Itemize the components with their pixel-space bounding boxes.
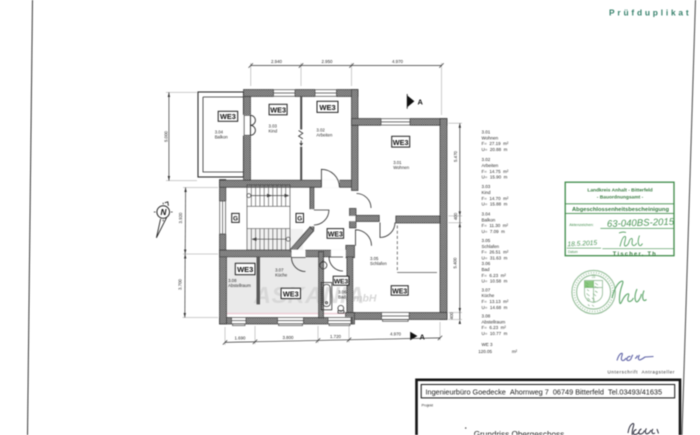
svg-text:5.470: 5.470 [453, 150, 458, 162]
svg-text:Kind: Kind [482, 190, 492, 195]
svg-text:Abgeschlossenheitsbescheinigun: Abgeschlossenheitsbescheinigung [572, 207, 669, 213]
svg-text:WE3: WE3 [393, 138, 409, 147]
svg-text:Tischer, Th: Tischer, Th [613, 251, 657, 257]
svg-text:Bad: Bad [482, 267, 491, 272]
svg-text:400: 400 [453, 212, 458, 220]
svg-text:3.05: 3.05 [482, 238, 491, 243]
svg-text:400: 400 [449, 312, 454, 320]
svg-text:Küche: Küche [482, 293, 495, 298]
svg-text:Abstellraum: Abstellraum [228, 283, 251, 288]
svg-text:3.04: 3.04 [482, 212, 491, 217]
svg-text:WE3: WE3 [220, 112, 236, 121]
svg-text:m²: m² [512, 349, 518, 354]
svg-text:F= 14.75 m²: F= 14.75 m² [482, 169, 509, 174]
svg-text:Abstellraum: Abstellraum [482, 319, 506, 324]
svg-text:WE3: WE3 [328, 231, 343, 238]
svg-text:WE3: WE3 [319, 103, 335, 112]
svg-text:Küche: Küche [275, 273, 288, 278]
svg-text:U= 31.63 m: U= 31.63 m [482, 255, 508, 260]
svg-text:4.970: 4.970 [390, 331, 402, 336]
svg-text:3.03: 3.03 [482, 184, 491, 189]
svg-text:Landkreis Anhalt - Bitterfeld: Landkreis Anhalt - Bitterfeld [587, 187, 652, 193]
svg-text:Prüfduplikat: Prüfduplikat [609, 7, 691, 17]
svg-text:3.07: 3.07 [482, 287, 491, 292]
svg-text:F= 27.19 m²: F= 27.19 m² [482, 141, 509, 146]
svg-text:F= 13.13 m²: F= 13.13 m² [482, 299, 509, 304]
svg-text:WE3: WE3 [237, 265, 253, 274]
svg-text:3.700: 3.700 [178, 278, 183, 290]
svg-text:3.920: 3.920 [178, 212, 183, 224]
svg-text:U= 15.88 m: U= 15.88 m [482, 202, 508, 207]
svg-text:A: A [420, 333, 426, 342]
svg-text:A: A [418, 98, 424, 107]
svg-text:Arbeiten: Arbeiten [482, 163, 499, 168]
svg-text:1.690: 1.690 [235, 336, 247, 341]
svg-text:Arbeiten: Arbeiten [316, 133, 333, 138]
svg-text:Ingenieurbüro Goedecke Ahornw: Ingenieurbüro Goedecke Ahornweg 7 06749 … [426, 387, 663, 396]
svg-text:WE3: WE3 [283, 289, 299, 298]
svg-text:Balkon: Balkon [482, 217, 496, 222]
svg-text:3.08: 3.08 [482, 314, 491, 319]
svg-text:Datum: Datum [568, 250, 578, 254]
svg-text:120.05: 120.05 [478, 349, 492, 354]
svg-text:3.06: 3.06 [482, 261, 491, 266]
svg-text:5.000: 5.000 [163, 130, 168, 142]
svg-text:2.950: 2.950 [322, 59, 334, 64]
svg-text:Kind: Kind [269, 129, 278, 134]
svg-text:3.01: 3.01 [482, 130, 491, 135]
svg-text:WE3: WE3 [392, 288, 407, 295]
svg-text:F= 14.70 m²: F= 14.70 m² [482, 196, 509, 201]
svg-text:F= 26.51 m²: F= 26.51 m² [482, 250, 509, 255]
svg-text:3.800: 3.800 [283, 335, 295, 340]
svg-text:WE 3: WE 3 [482, 342, 493, 347]
svg-text:5.400: 5.400 [453, 257, 458, 269]
svg-text:U= 14.68 m: U= 14.68 m [482, 305, 508, 310]
svg-text:Aktenzeichen:: Aktenzeichen: [569, 222, 593, 227]
svg-text:3.02: 3.02 [482, 157, 491, 162]
svg-text:G: G [297, 216, 302, 223]
svg-text:Schlafen: Schlafen [370, 261, 387, 266]
svg-text:F= 6.23 m²: F= 6.23 m² [482, 325, 507, 330]
svg-text:Schlafen: Schlafen [482, 244, 500, 249]
svg-text:Grundriss Obergeschoss: Grundriss Obergeschoss [474, 430, 565, 435]
svg-text:F= 11.30 m²: F= 11.30 m² [482, 223, 509, 228]
svg-text:G: G [233, 216, 238, 223]
svg-text:Wohnen: Wohnen [482, 135, 499, 140]
svg-text:Unterschrift Antragsteller: Unterschrift Antragsteller [608, 370, 676, 375]
svg-text:F= 6.23 m²: F= 6.23 m² [482, 273, 507, 278]
svg-text:U= 10.58 m: U= 10.58 m [482, 279, 508, 284]
svg-text:2.940: 2.940 [271, 59, 283, 64]
svg-text:Bad: Bad [338, 294, 346, 299]
svg-text:U= 15.90 m: U= 15.90 m [482, 175, 508, 180]
svg-text:Projekt: Projekt [422, 403, 433, 407]
svg-text:Balkon: Balkon [215, 134, 229, 139]
svg-text:1.720: 1.720 [330, 334, 342, 339]
svg-text:Wohnen: Wohnen [393, 165, 410, 170]
svg-text:28: 28 [592, 275, 596, 279]
svg-text:WE3: WE3 [270, 106, 286, 115]
svg-text:U= 7.09 m: U= 7.09 m [482, 229, 506, 234]
svg-text:U= 10.77 m: U= 10.77 m [482, 331, 508, 336]
svg-text:U= 20.88 m: U= 20.88 m [482, 147, 508, 152]
svg-text:WE3: WE3 [334, 278, 349, 285]
svg-text:4.970: 4.970 [392, 59, 404, 64]
svg-text:- Bauordnungsamt -: - Bauordnungsamt - [597, 195, 644, 201]
